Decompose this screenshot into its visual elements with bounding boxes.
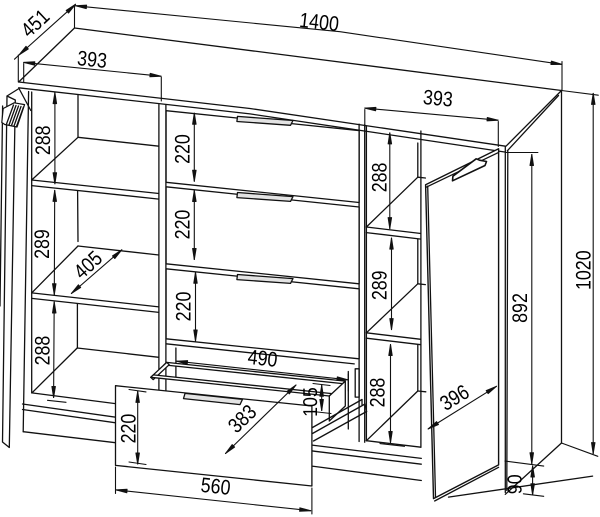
svg-text:288: 288 (368, 163, 391, 193)
svg-text:289: 289 (369, 270, 392, 300)
svg-text:220: 220 (173, 292, 196, 322)
svg-text:1400: 1400 (298, 9, 340, 36)
svg-text:288: 288 (367, 378, 390, 408)
svg-text:490: 490 (247, 346, 279, 372)
svg-text:220: 220 (172, 134, 195, 164)
svg-text:105: 105 (300, 387, 322, 417)
svg-text:560: 560 (200, 474, 232, 500)
svg-text:288: 288 (32, 125, 55, 155)
svg-text:288: 288 (32, 336, 55, 366)
svg-text:220: 220 (117, 414, 140, 444)
svg-text:289: 289 (31, 229, 54, 259)
svg-text:892: 892 (509, 293, 532, 323)
svg-text:90: 90 (504, 474, 526, 494)
svg-text:1020: 1020 (573, 250, 596, 290)
svg-text:220: 220 (172, 210, 195, 240)
svg-text:393: 393 (76, 47, 108, 73)
svg-text:393: 393 (422, 86, 454, 112)
